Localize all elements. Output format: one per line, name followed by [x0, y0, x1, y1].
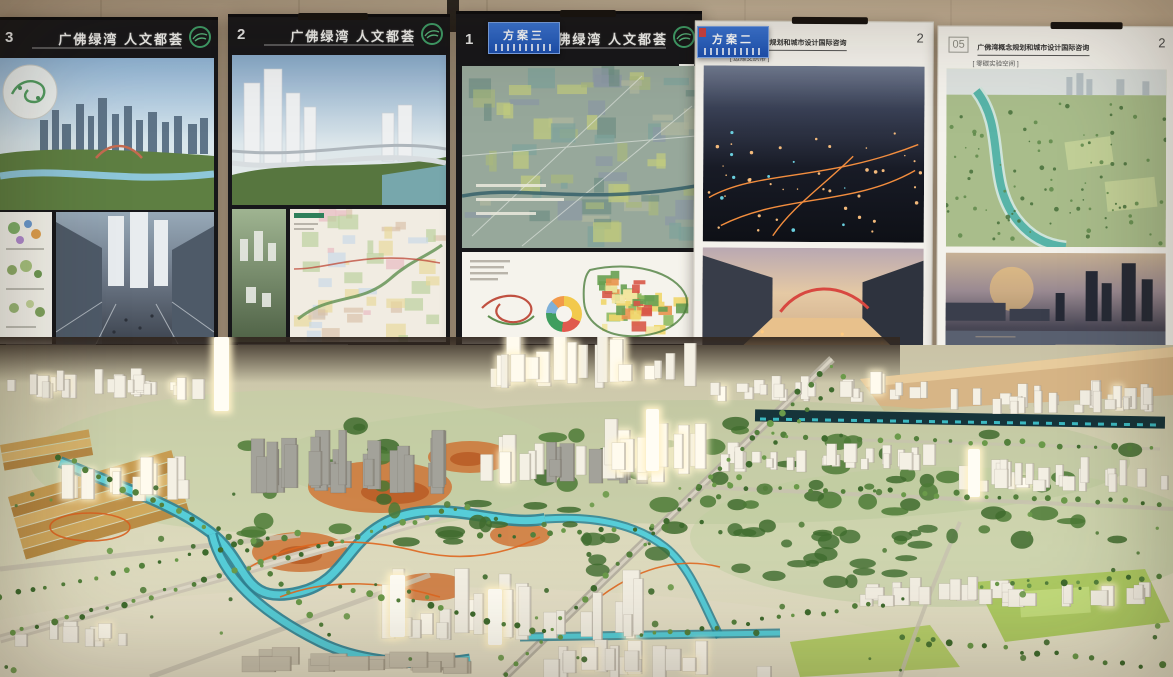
board3-title: 广佛绿湾 人文都荟 [542, 29, 668, 48]
mounting-clip [298, 13, 368, 20]
board2-side-render-graphic [232, 209, 286, 342]
board2-masterplan-map [290, 209, 446, 342]
board5-page-number: 2 [1158, 35, 1165, 50]
mounting-clip [1051, 22, 1123, 29]
mounting-clip [560, 10, 616, 17]
board1-english-caption [32, 47, 182, 49]
board2-side-render [232, 209, 286, 342]
board1-street-render [56, 212, 214, 344]
board1-side-number: 3 [5, 29, 13, 46]
board1-header: 3 广佛绿湾 人文都荟 [0, 20, 218, 56]
design-board-3: 1 广佛绿湾 人文都荟 方案三 3 [456, 11, 702, 355]
design-board-5: 2 05 广佛湾概念规划和城市设计国际咨询 [ 零碳实验空间 ] [936, 26, 1173, 369]
board3-aerial-render [462, 66, 696, 248]
board5-green-aerial-render [946, 69, 1167, 248]
board3-plan-sheet-graphic [462, 252, 696, 344]
tag-skyline-icon [704, 48, 762, 55]
tag-corner-mark [699, 28, 706, 37]
plan-2-tag-label: 方案二 [712, 34, 754, 46]
board2-top-render-graphic [232, 55, 446, 205]
plan-2-tag: 方案二 [697, 26, 769, 58]
board1-top-render-graphic [0, 58, 214, 210]
board5-header: 05 广佛湾概念规划和城市设计国际咨询 [ 零碳实验空间 ] [948, 37, 1148, 69]
board3-plan-sheet [462, 252, 696, 344]
exhibition-photo: 3 广佛绿湾 人文都荟 3 [0, 0, 1173, 677]
board3-aerial-graphic [462, 66, 696, 248]
board2-side-number: 2 [237, 26, 245, 43]
board3-side-number: 1 [465, 31, 473, 48]
board4-page-number: 2 [917, 31, 924, 46]
board1-street-render-graphic [56, 212, 214, 344]
board5-header-title: 广佛湾概念规划和城市设计国际咨询 [977, 43, 1089, 56]
board1-top-render [0, 58, 214, 210]
bay-logo-icon [188, 25, 212, 49]
board1-bubble-diagrams [0, 212, 52, 344]
bay-logo-icon [420, 22, 444, 46]
bay-logo-icon [672, 25, 696, 49]
board2-title: 广佛绿湾 人文都荟 [290, 26, 416, 45]
landuse-donut-chart [546, 296, 582, 332]
board1-diagram-sheet [0, 212, 52, 344]
board2-top-render [232, 55, 446, 205]
design-board-2: 2 广佛绿湾 人文都荟 3 [228, 14, 450, 350]
board4-night-aerial-render [703, 65, 925, 242]
board1-title: 广佛绿湾 人文都荟 [58, 29, 184, 48]
design-board-1: 3 广佛绿湾 人文都荟 3 [0, 17, 218, 350]
board2-header: 2 广佛绿湾 人文都荟 [228, 17, 450, 53]
tag-skyline-icon [495, 44, 553, 51]
city-scale-model [0, 337, 1173, 677]
design-board-4: 2 06 广佛湾概念规划和城市设计国际咨询 [ 边缘交织带 ] [693, 20, 934, 364]
plan-3-tag-label: 方案三 [503, 30, 545, 42]
board2-masterplan-graphic [290, 209, 446, 342]
board5-sub-header: [ 零碳实验空间 ] [972, 58, 1148, 69]
board4-night-graphic [703, 65, 925, 242]
board5-section-number: 05 [949, 37, 969, 53]
mounting-clip [792, 17, 868, 24]
plan-3-tag: 方案三 [488, 22, 560, 54]
board2-english-caption [264, 44, 414, 46]
board5-green-aerial-graphic [946, 69, 1167, 248]
